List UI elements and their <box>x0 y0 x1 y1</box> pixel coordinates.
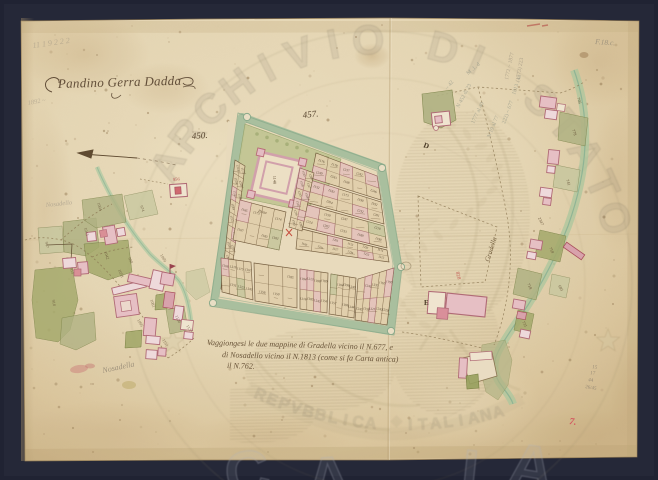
svg-text:F.18.c.: F.18.c. <box>594 37 616 47</box>
svg-text:1148: 1148 <box>272 176 277 184</box>
svg-text:1244: 1244 <box>348 305 355 310</box>
svg-text:A: A <box>304 444 353 480</box>
svg-text:7.: 7. <box>569 417 577 428</box>
svg-text:A: A <box>364 415 378 433</box>
svg-text:956: 956 <box>173 176 181 182</box>
svg-text:T: T <box>418 416 429 434</box>
svg-text:O: O <box>351 16 386 65</box>
svg-text:E: E <box>424 299 429 307</box>
svg-text:il N.762.: il N.762. <box>227 361 255 371</box>
svg-text:457.: 457. <box>302 108 319 120</box>
svg-text:L: L <box>458 437 503 480</box>
svg-text:I: I <box>408 417 413 434</box>
svg-text:A: A <box>429 415 442 433</box>
svg-text:450.: 450. <box>191 130 207 141</box>
